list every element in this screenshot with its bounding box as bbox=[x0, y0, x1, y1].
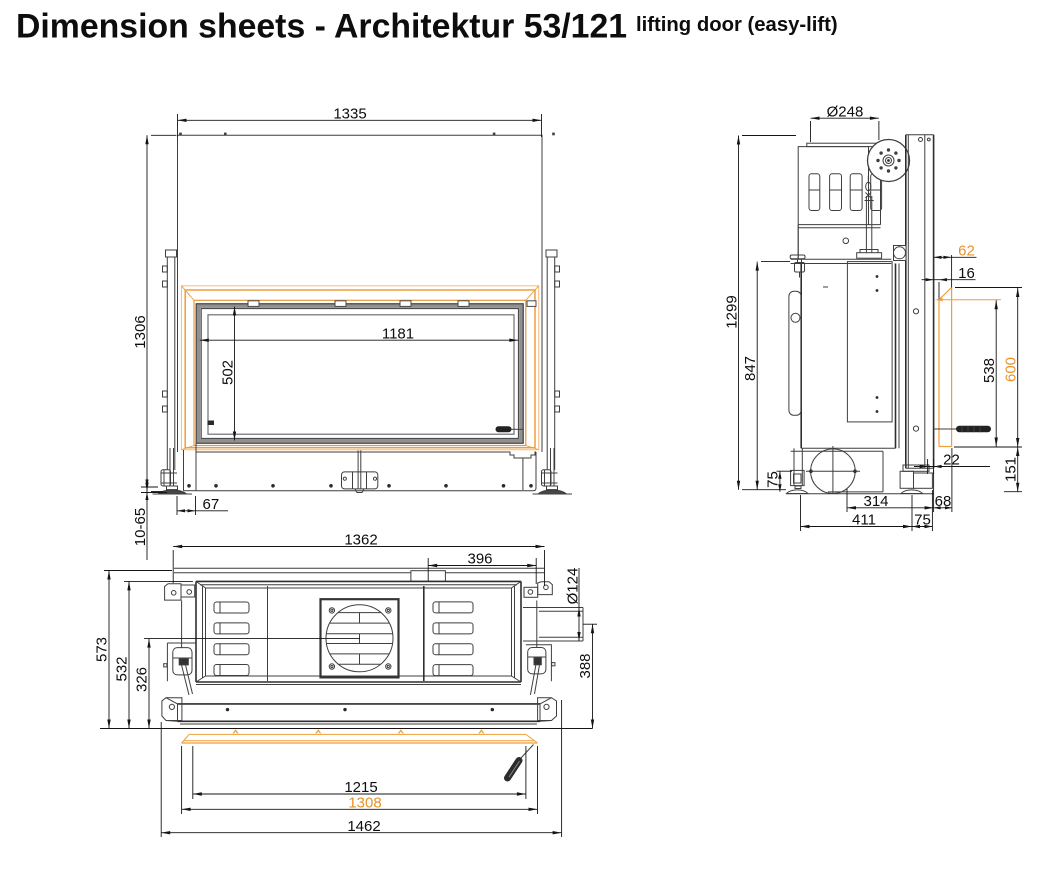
svg-text:1335: 1335 bbox=[333, 106, 366, 123]
svg-text:411: 411 bbox=[852, 512, 876, 529]
svg-text:1181: 1181 bbox=[382, 325, 414, 342]
svg-text:lifting door (easy-lift): lifting door (easy-lift) bbox=[636, 14, 838, 36]
svg-text:600: 600 bbox=[1003, 357, 1020, 382]
svg-text:1306: 1306 bbox=[132, 315, 149, 348]
svg-text:573: 573 bbox=[94, 637, 111, 662]
svg-text:314: 314 bbox=[863, 493, 888, 510]
svg-text:67: 67 bbox=[203, 496, 220, 513]
svg-text:1299: 1299 bbox=[724, 295, 741, 328]
svg-text:388: 388 bbox=[577, 653, 594, 678]
svg-text:62: 62 bbox=[958, 243, 975, 260]
svg-text:151: 151 bbox=[1003, 457, 1020, 482]
svg-text:68: 68 bbox=[935, 493, 952, 510]
svg-text:326: 326 bbox=[134, 667, 151, 692]
svg-text:1362: 1362 bbox=[344, 532, 377, 549]
svg-text:538: 538 bbox=[981, 358, 998, 383]
svg-text:1462: 1462 bbox=[347, 818, 380, 835]
svg-text:Ø124: Ø124 bbox=[564, 568, 581, 605]
svg-text:502: 502 bbox=[220, 360, 237, 385]
svg-text:847: 847 bbox=[742, 356, 759, 381]
svg-text:1308: 1308 bbox=[348, 795, 381, 812]
svg-text:10-65: 10-65 bbox=[132, 508, 149, 546]
svg-text:532: 532 bbox=[114, 656, 131, 681]
svg-text:Ø248: Ø248 bbox=[827, 103, 864, 120]
svg-text:75: 75 bbox=[765, 471, 782, 488]
svg-text:Dimension sheets - Architektur: Dimension sheets - Architektur 53/121 bbox=[16, 8, 627, 46]
svg-text:16: 16 bbox=[958, 265, 975, 282]
svg-text:396: 396 bbox=[467, 551, 492, 568]
svg-text:75: 75 bbox=[914, 512, 931, 529]
